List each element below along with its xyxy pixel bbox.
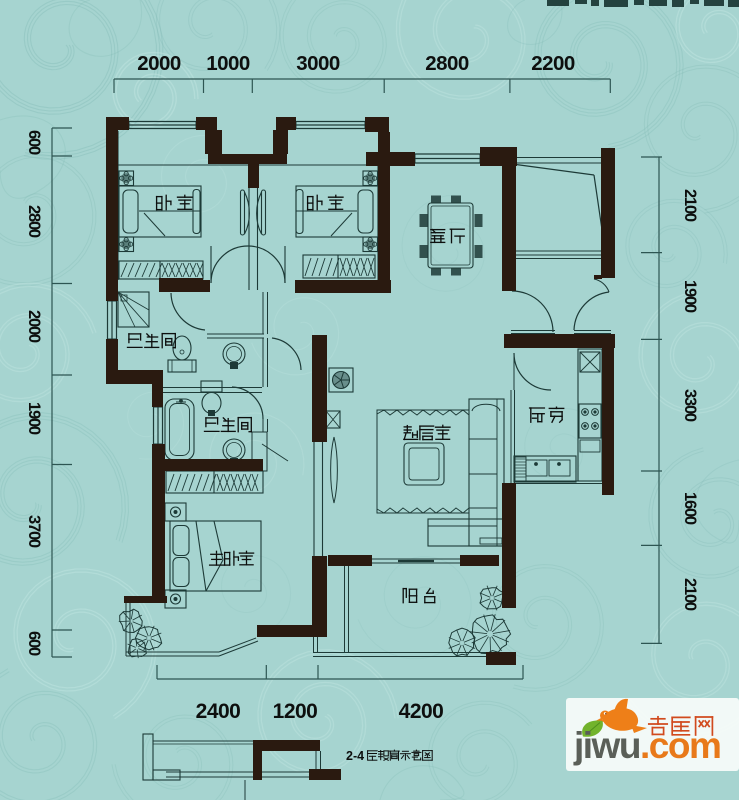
- svg-text:3000: 3000: [296, 52, 340, 75]
- svg-text:2800: 2800: [25, 205, 43, 238]
- svg-text:1200: 1200: [273, 700, 318, 723]
- svg-text:1600: 1600: [681, 492, 699, 525]
- svg-text:1000: 1000: [206, 52, 250, 75]
- svg-text:2200: 2200: [531, 52, 575, 75]
- svg-text:1900: 1900: [681, 280, 699, 313]
- svg-text:2000: 2000: [137, 52, 181, 75]
- svg-text:600: 600: [25, 130, 43, 155]
- svg-text:3300: 3300: [681, 389, 699, 422]
- svg-text:2100: 2100: [681, 578, 699, 611]
- svg-text:1900: 1900: [25, 402, 43, 435]
- svg-text:4200: 4200: [399, 700, 444, 723]
- svg-text:2100: 2100: [681, 189, 699, 222]
- svg-text:2800: 2800: [425, 52, 469, 75]
- svg-text:2-4: 2-4: [346, 749, 364, 763]
- svg-text:600: 600: [25, 631, 43, 656]
- svg-text:2000: 2000: [25, 310, 43, 343]
- svg-text:2400: 2400: [196, 700, 241, 723]
- svg-text:jiwu: jiwu: [573, 725, 640, 766]
- svg-text:3700: 3700: [25, 515, 43, 548]
